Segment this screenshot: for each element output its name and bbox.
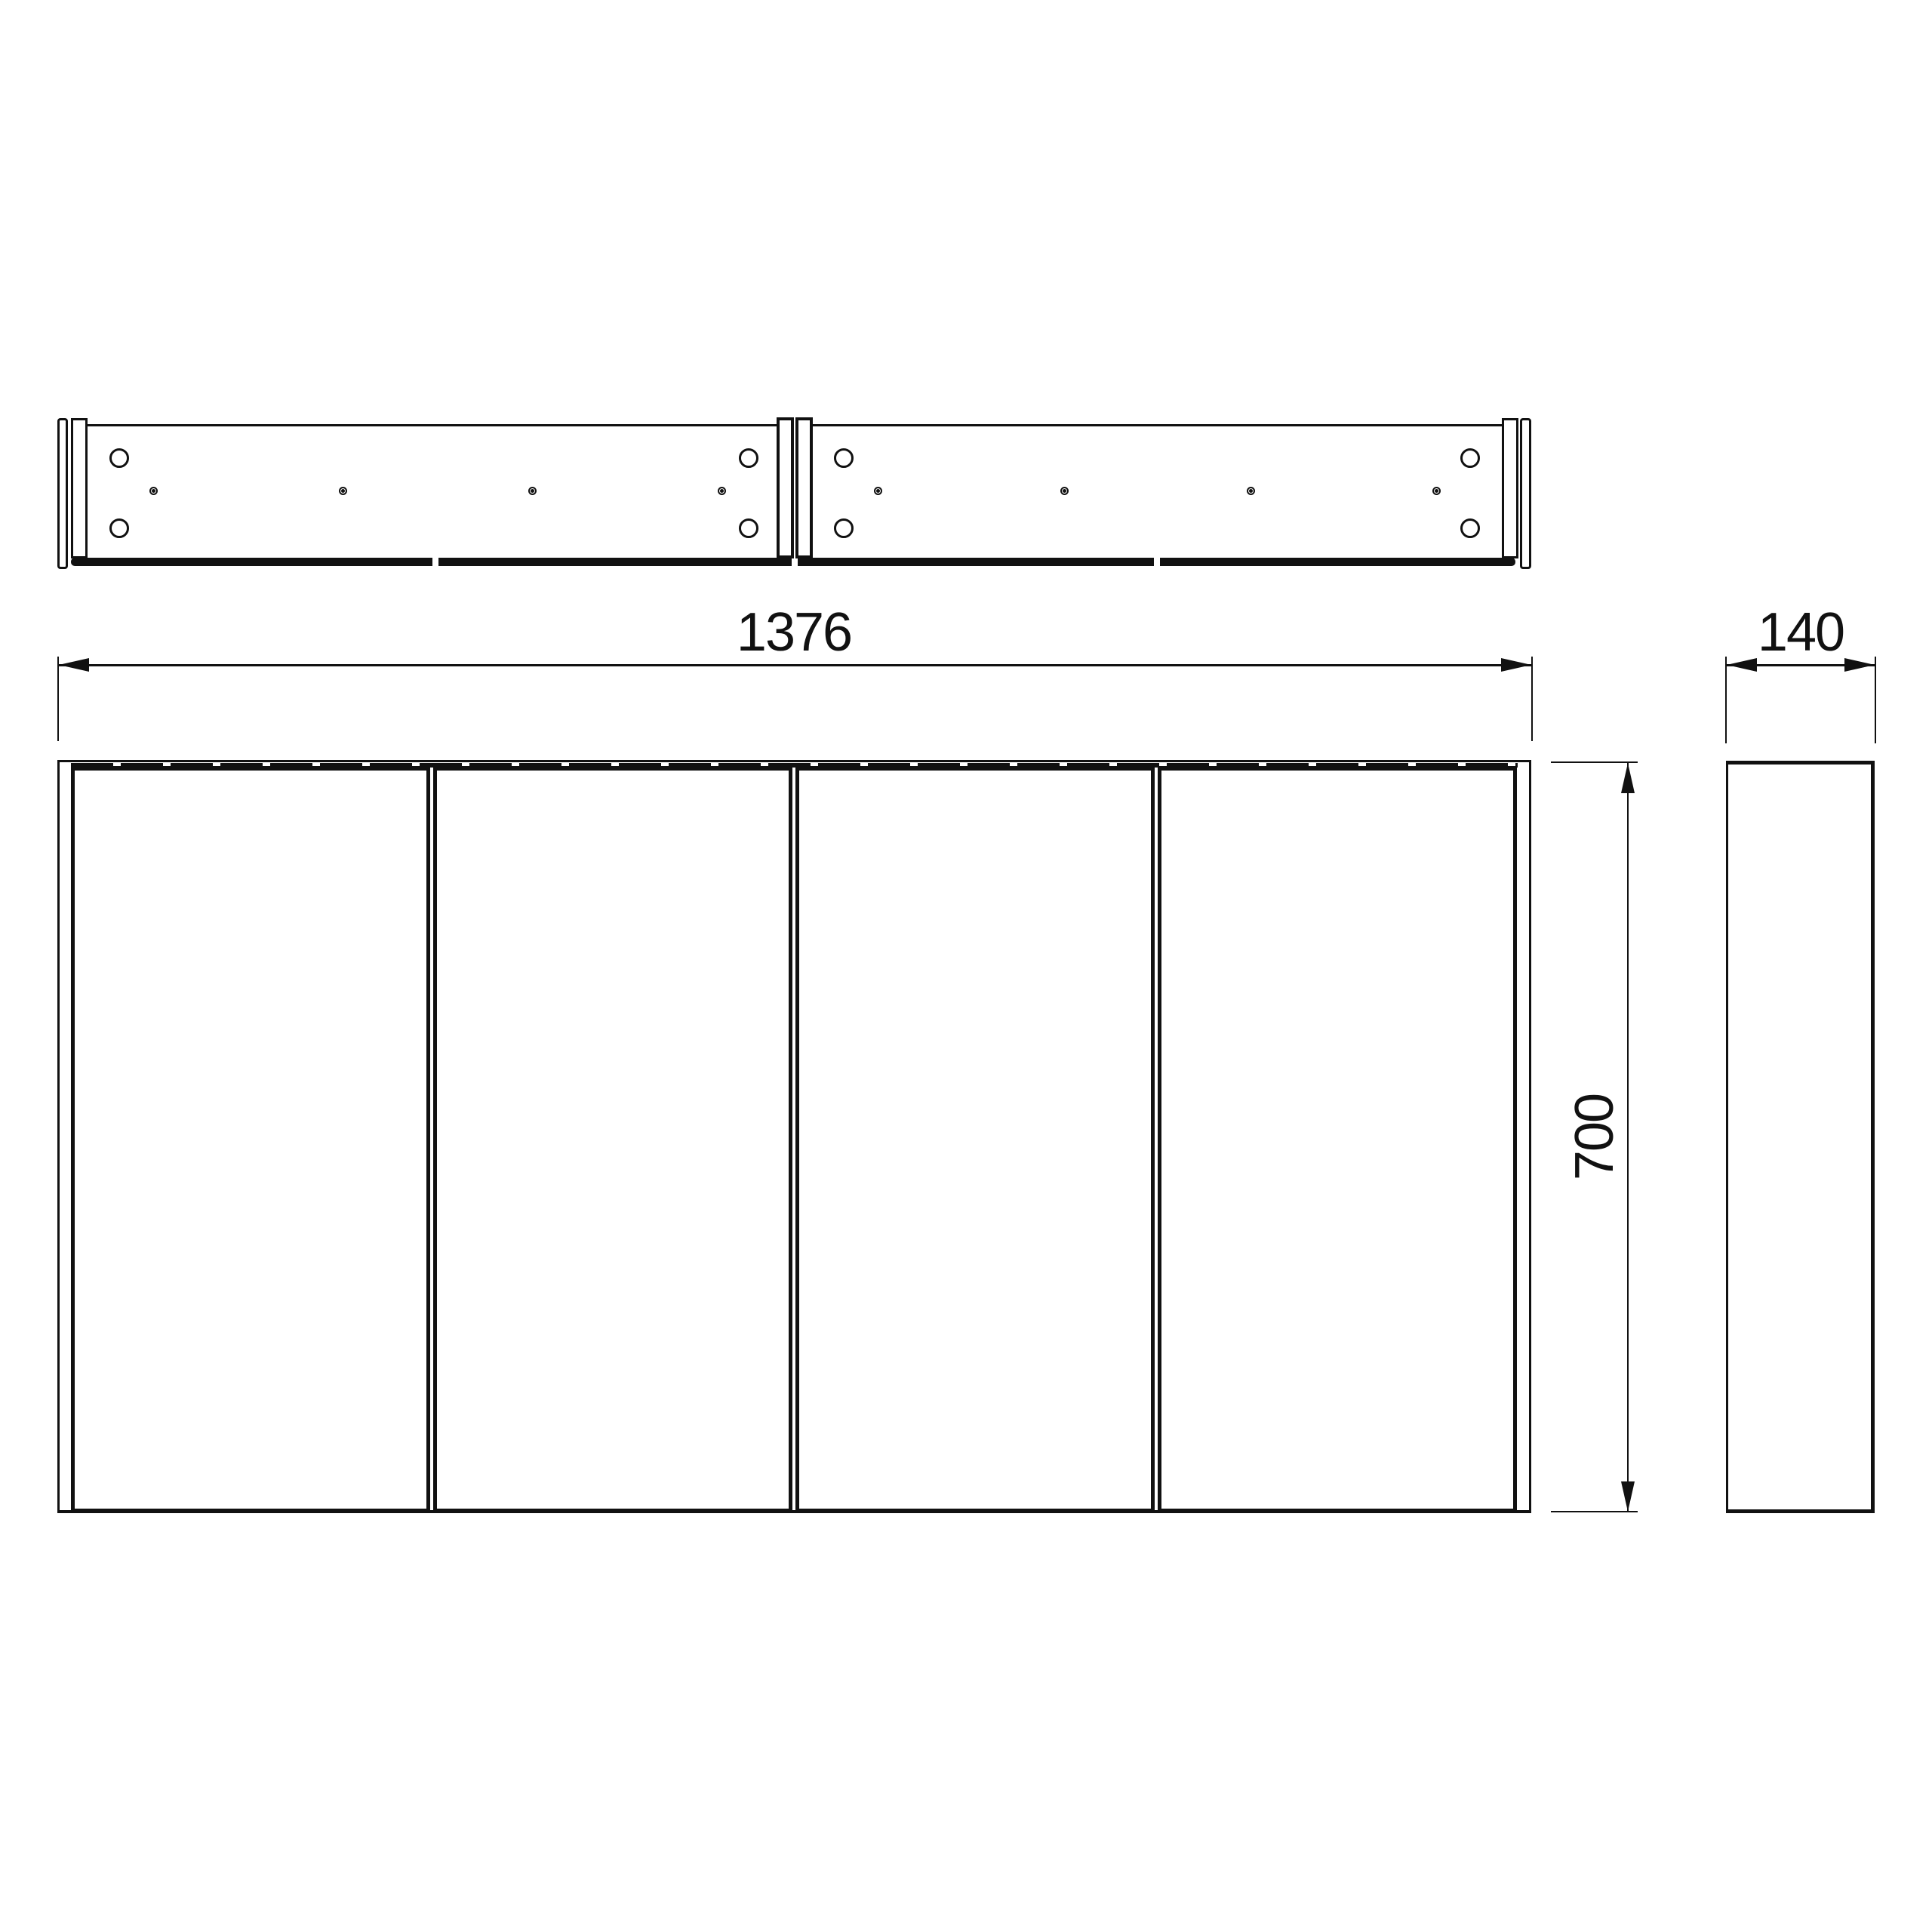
mounting-hole bbox=[1460, 518, 1480, 538]
top-view-left-end-cap bbox=[57, 418, 68, 569]
screw-hole-center bbox=[1435, 489, 1438, 493]
dim-depth-extension-right bbox=[1875, 657, 1876, 743]
dim-width-arrow-right bbox=[1501, 658, 1531, 672]
mirror-door-4 bbox=[1158, 766, 1517, 1513]
screw-hole-center bbox=[1063, 489, 1066, 493]
screw-hole-center bbox=[720, 489, 724, 493]
dim-height-label: 700 bbox=[1572, 1077, 1617, 1198]
front-view-left-edge bbox=[57, 761, 60, 1513]
screw-hole-center bbox=[152, 489, 155, 493]
front-view-top-edge bbox=[57, 760, 1531, 762]
mounting-hole bbox=[1460, 448, 1480, 468]
dim-height-arrow-bottom bbox=[1621, 1481, 1635, 1512]
mounting-hole bbox=[834, 448, 854, 468]
top-view-right-body bbox=[813, 424, 1502, 558]
technical-drawing-canvas: maxaro 1376 bbox=[0, 0, 1932, 1932]
dim-width-line bbox=[59, 664, 1531, 666]
top-view-left-side-panel bbox=[71, 418, 88, 558]
dim-depth-arrow-right bbox=[1844, 658, 1875, 672]
front-bar-joint-gap bbox=[1154, 558, 1160, 566]
mirror-door-2 bbox=[433, 766, 792, 1513]
mounting-hole bbox=[109, 448, 129, 468]
front-bar-joint-gap bbox=[792, 558, 798, 566]
screw-hole-center bbox=[876, 489, 880, 493]
top-view-right-side-panel bbox=[1502, 418, 1518, 558]
top-view-center-joint-left-panel bbox=[777, 417, 794, 558]
mounting-hole bbox=[109, 518, 129, 538]
dim-width-arrow-left bbox=[59, 658, 89, 672]
top-view-center-joint-right-panel bbox=[795, 417, 813, 558]
mirror-door-3 bbox=[795, 766, 1155, 1513]
screw-hole-center bbox=[341, 489, 345, 493]
mounting-hole bbox=[834, 518, 854, 538]
side-view bbox=[1726, 761, 1875, 1513]
dim-height-line bbox=[1627, 763, 1629, 1512]
top-view-right-end-cap bbox=[1520, 418, 1531, 569]
mirror-door-1 bbox=[71, 766, 430, 1513]
front-bar-joint-gap bbox=[432, 558, 438, 566]
dim-height-arrow-top bbox=[1621, 763, 1635, 793]
mounting-hole bbox=[739, 448, 758, 468]
dim-width-extension-right bbox=[1531, 657, 1533, 741]
top-view-left-body bbox=[88, 424, 777, 558]
screw-hole-center bbox=[531, 489, 534, 493]
front-view-right-edge bbox=[1529, 761, 1531, 1513]
dim-depth-label: 140 bbox=[1727, 605, 1875, 660]
mounting-hole bbox=[739, 518, 758, 538]
dim-width-label: 1376 bbox=[718, 605, 869, 660]
screw-hole-center bbox=[1249, 489, 1253, 493]
dim-depth-arrow-left bbox=[1727, 658, 1757, 672]
